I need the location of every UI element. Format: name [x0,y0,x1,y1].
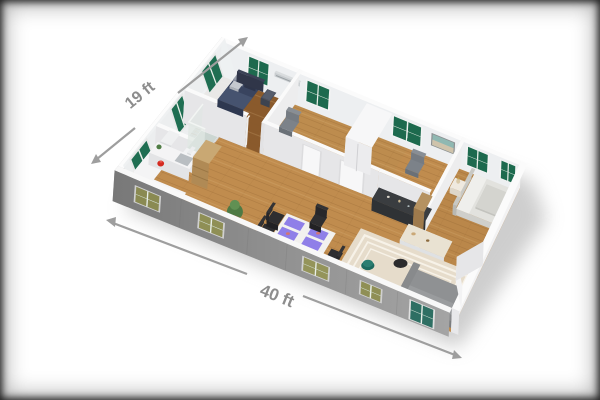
svg-text:40 ft: 40 ft [257,281,297,312]
svg-text:19 ft: 19 ft [122,78,159,112]
